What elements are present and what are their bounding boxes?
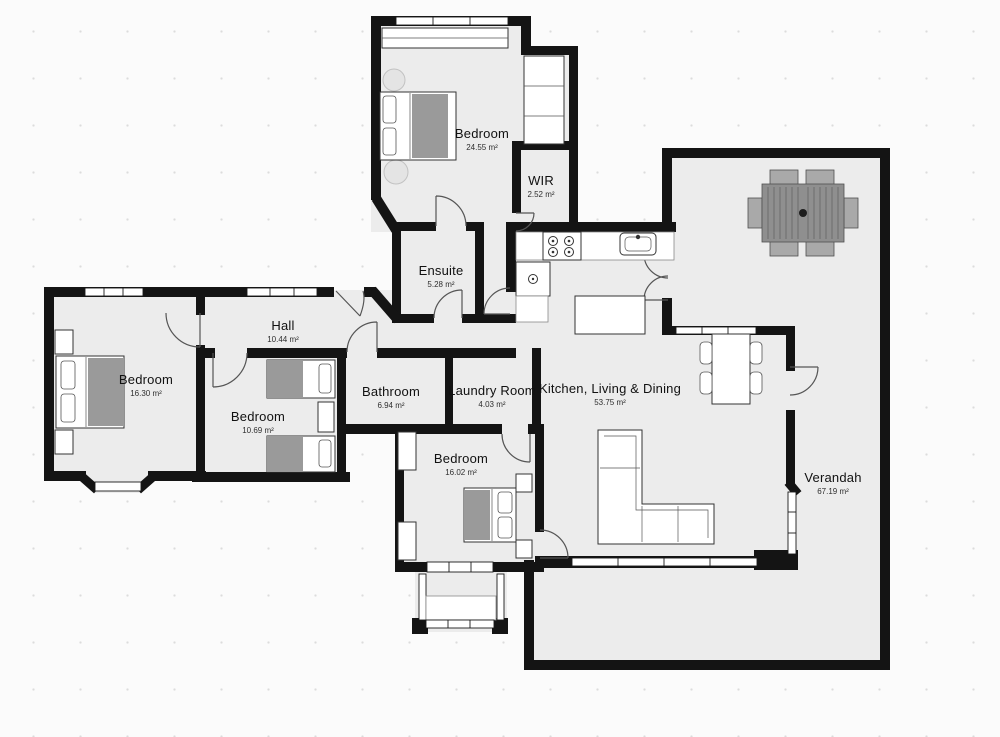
wardrobe [524, 56, 564, 144]
double-bed-icon [56, 356, 124, 428]
double-bed-icon [380, 92, 456, 160]
bedside-table [318, 402, 334, 432]
closet [382, 28, 508, 48]
sliding-door [427, 562, 493, 572]
kitchen-cupboard [516, 296, 548, 322]
double-bed-icon [464, 488, 516, 542]
kitchen-sink-icon [620, 233, 656, 255]
round-side-table [384, 160, 408, 184]
fridge-icon [516, 262, 550, 296]
bedside-table [516, 540, 532, 558]
bedside-table [55, 430, 73, 454]
kitchen-island [575, 296, 645, 334]
bedside-table [55, 330, 73, 354]
single-bed-icon [267, 360, 335, 398]
porch-steps [426, 596, 496, 620]
wardrobe [398, 432, 416, 470]
single-bed-icon [267, 436, 335, 472]
stove-icon [543, 232, 581, 260]
round-side-table [383, 69, 405, 91]
wardrobe [398, 522, 416, 560]
floorplan-canvas [0, 0, 1000, 737]
floorplan: Bedroom 24.55 m² WIR 2.52 m² Ensuite 5.2… [0, 0, 1000, 737]
bedside-table [516, 474, 532, 492]
